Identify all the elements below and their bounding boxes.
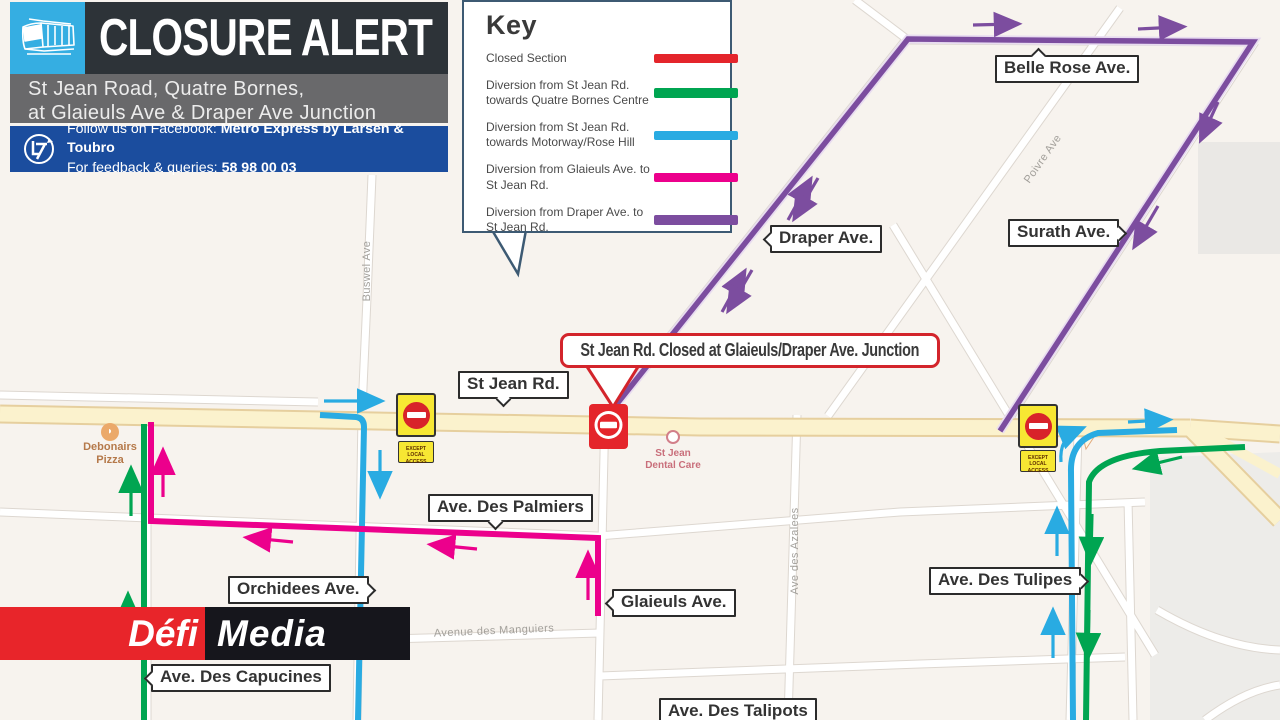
page-title: CLOSURE ALERT	[99, 8, 432, 68]
label-ave-des-talipots: Ave. Des Talipots	[659, 698, 817, 720]
poi-debonairs-pizza: ◗ Debonairs Pizza	[72, 423, 148, 466]
tram-icon	[10, 2, 85, 74]
street-name-buswel: Buswel Ave	[361, 236, 373, 306]
legend-item-purple: Diversion from Draper Ave. to St Jean Rd…	[486, 205, 718, 236]
label-ave-des-tulipes: Ave. Des Tulipes	[929, 567, 1081, 595]
label-st-jean-rd: St Jean Rd.	[458, 371, 569, 399]
swatch-cyan	[654, 131, 738, 141]
defi-media-logo: Défi Media	[0, 607, 410, 660]
title-bar: CLOSURE ALERT	[10, 2, 448, 74]
swatch-closed-red	[654, 54, 738, 64]
label-orchidees-ave: Orchidees Ave.	[228, 576, 369, 604]
except-local-access-sign: EXCEPT LOCALACCESS	[398, 441, 434, 463]
key-panel-tail	[478, 230, 538, 278]
label-belle-rose-ave: Belle Rose Ave.	[995, 55, 1139, 83]
except-local-access-sign: EXCEPT LOCALACCESS	[1020, 450, 1056, 472]
swatch-green	[654, 88, 738, 98]
map-block	[1198, 142, 1280, 254]
defi-logo-media: Media	[205, 607, 410, 660]
larsen-toubro-logo-icon	[22, 132, 56, 166]
swatch-magenta	[654, 173, 738, 183]
legend-title: Key	[486, 10, 718, 41]
street-name-azalees: Ave des Azalees	[789, 505, 801, 597]
poi-st-jean-dental-care: St Jean Dental Care	[635, 430, 711, 472]
header: CLOSURE ALERT St Jean Road, Quatre Borne…	[10, 2, 448, 172]
legend-item-cyan: Diversion from St Jean Rd. towards Motor…	[486, 120, 718, 151]
no-entry-icon	[1025, 413, 1052, 440]
no-entry-sign	[396, 393, 436, 437]
pizza-icon: ◗	[101, 423, 119, 441]
dental-icon	[666, 430, 680, 444]
label-glaieuls-ave: Glaieuls Ave.	[612, 589, 736, 617]
legend-panel: Key Closed Section Diversion from St Jea…	[462, 0, 732, 233]
label-ave-des-palmiers: Ave. Des Palmiers	[428, 494, 593, 522]
road-closed-marker	[589, 404, 628, 449]
swatch-purple	[654, 215, 738, 225]
contact-bar: Follow us on Facebook: Metro Express by …	[10, 126, 448, 172]
no-entry-sign	[1018, 404, 1058, 448]
closure-alert-map: Buswel Ave Poivre Ave Ave des Azalees Av…	[0, 0, 1280, 720]
defi-logo-red: Défi	[0, 607, 205, 660]
legend-item-green: Diversion from St Jean Rd. towards Quatr…	[486, 78, 718, 109]
closure-alert-callout: St Jean Rd. Closed at Glaieuls/Draper Av…	[560, 333, 940, 368]
closure-subtitle: St Jean Road, Quatre Bornes, at Glaieuls…	[10, 74, 448, 123]
legend-item-closed: Closed Section	[486, 51, 718, 66]
no-entry-icon	[403, 402, 430, 429]
label-surath-ave: Surath Ave.	[1008, 219, 1119, 247]
label-draper-ave: Draper Ave.	[770, 225, 882, 253]
label-ave-des-capucines: Ave. Des Capucines	[151, 664, 331, 692]
contact-text: Follow us on Facebook: Metro Express by …	[67, 120, 448, 178]
legend-item-magenta: Diversion from Glaieuls Ave. to St Jean …	[486, 162, 718, 193]
